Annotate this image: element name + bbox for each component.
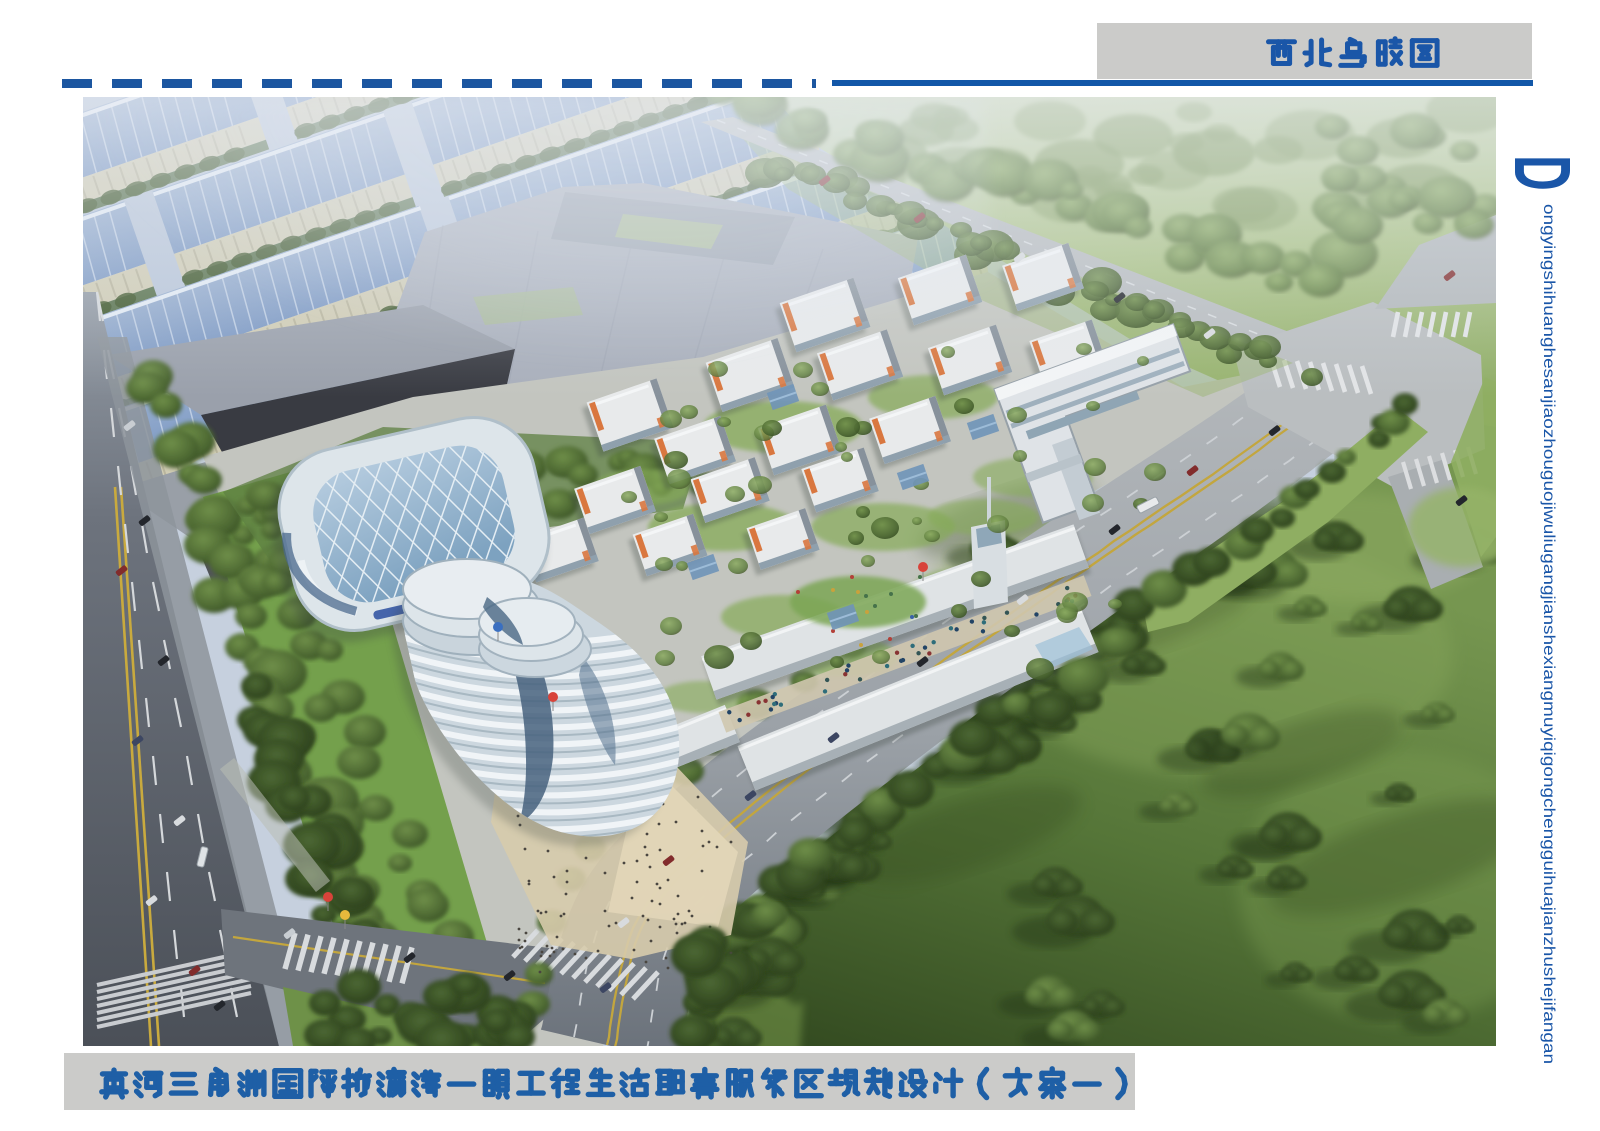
- svg-text:ongyingshihuanghesanjiaozhougu: ongyingshihuanghesanjiaozhouguojiwuliuga…: [1540, 204, 1557, 1064]
- svg-text:D: D: [1508, 155, 1578, 191]
